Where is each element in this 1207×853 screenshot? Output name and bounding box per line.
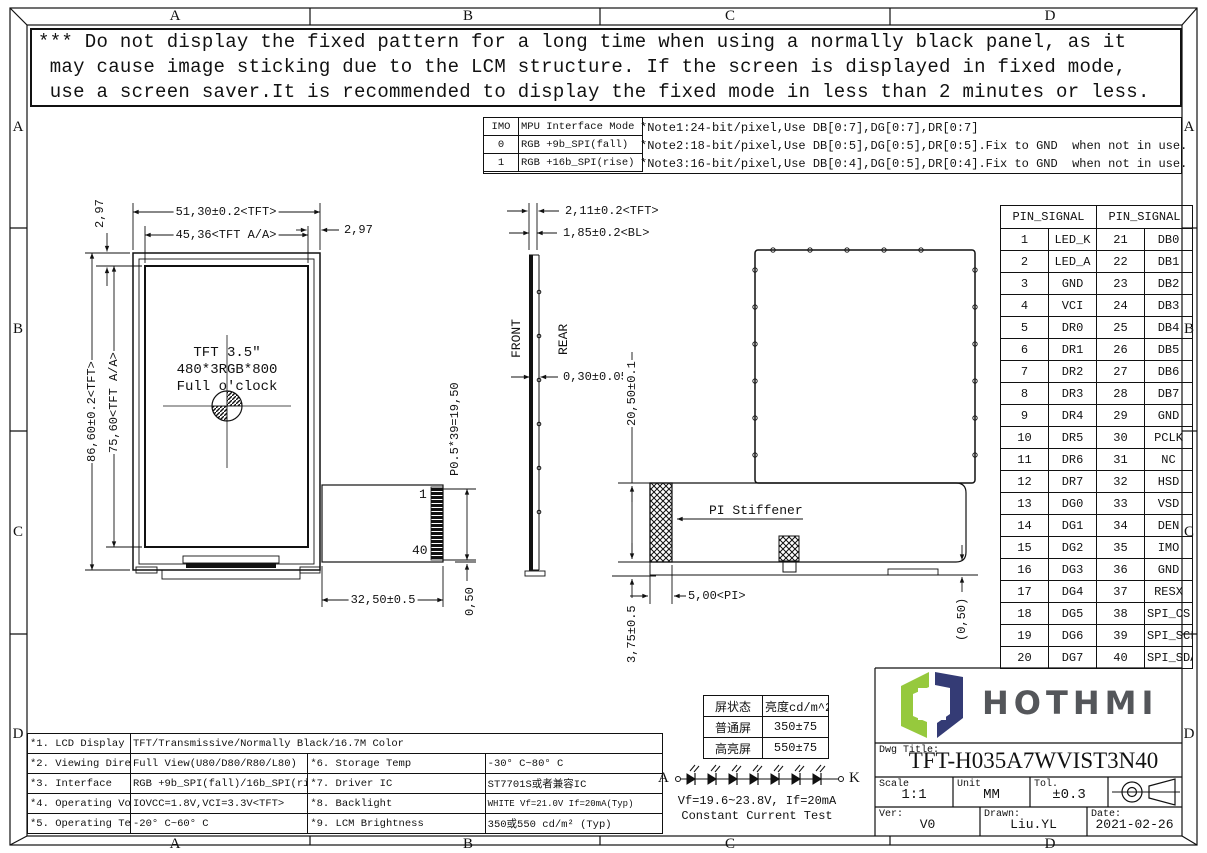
dim-thickness-tft: 2,11±0.2<TFT> (563, 204, 661, 218)
zone-bottom-a: A (170, 836, 181, 853)
warning-line: may cause image sticking due to the LCM … (38, 56, 1126, 78)
pi-stiffener-label: PI Stiffener (707, 504, 805, 518)
panel-spec-line1: TFT 3.5″ (193, 345, 260, 361)
pin-number: 13 (1001, 493, 1049, 515)
brightness-normal-value: 350±75 (763, 717, 829, 738)
pin-number: 19 (1001, 625, 1049, 647)
spec-row: *2. Viewing Diretion Full View(U80/D80/R… (28, 754, 663, 774)
spec-value: ST7701S或者兼容IC (485, 774, 662, 794)
pin-row: 3GND23DB2 (1001, 273, 1193, 295)
pin-row: 8DR328DB7 (1001, 383, 1193, 405)
brand-logo-text: HOTHMI (982, 684, 1158, 722)
pin-number: 2 (1001, 251, 1049, 273)
dim-half-mm: 0,50 (461, 586, 479, 617)
spec-value: Full View(U80/D80/R80/L80) (131, 754, 308, 774)
pin-number: 7 (1001, 361, 1049, 383)
dim-pi-width: 5,00<PI> (686, 589, 748, 603)
pin-signal: LED_K (1049, 229, 1097, 251)
dim-pin-pitch: P0.5*39=19,50 (446, 381, 464, 477)
brightness-normal-label: 普通屏 (704, 717, 763, 738)
pin-signal: DR2 (1049, 361, 1097, 383)
pin-number: 27 (1097, 361, 1145, 383)
pin-number: 16 (1001, 559, 1049, 581)
imo-value: 1 (484, 154, 519, 172)
pin-signal: GND (1049, 273, 1097, 295)
spec-label: *4. Operating Voltage (28, 794, 131, 814)
spec-label: *1. LCD Display Type (28, 734, 131, 754)
spec-row: *4. Operating Voltage IOVCC=1.8V,VCI=3.3… (28, 794, 663, 814)
pin-signal: GND (1145, 405, 1193, 427)
pin-row: 14DG134DEN (1001, 515, 1193, 537)
zone-right-a: A (1183, 119, 1195, 136)
pin-number: 23 (1097, 273, 1145, 295)
front-side-label: FRONT (508, 318, 526, 359)
imo-header: IMO (484, 118, 519, 136)
pin-number: 10 (1001, 427, 1049, 449)
pin-number: 26 (1097, 339, 1145, 361)
dim-polarizer: 0,30±0.05 (561, 370, 630, 384)
dim-fold-height: 20,50±0.1 (623, 360, 641, 427)
hothmi-logo-mark (901, 672, 963, 738)
pin-signal: DR7 (1049, 471, 1097, 493)
panel-spec-line2: 480*3RGB*800 (177, 362, 278, 378)
pin-number: 34 (1097, 515, 1145, 537)
pin-number: 18 (1001, 603, 1049, 625)
pin-row: 18DG538SPI_CS (1001, 603, 1193, 625)
dim-stiffener-height: 3,75±0.5 (623, 604, 641, 664)
spec-row: *5. Operating Temp -20° C~60° C *9. LCM … (28, 814, 663, 834)
pin-signal: DB4 (1145, 317, 1193, 339)
note-2: *Note2:18-bit/pixel,Use DB[0:5],DG[0:5],… (640, 139, 1187, 153)
zone-left-d: D (12, 726, 24, 743)
pin-signal: DB6 (1145, 361, 1193, 383)
spec-value: -20° C~60° C (131, 814, 308, 834)
side-view (525, 255, 545, 576)
pin-signal: DB7 (1145, 383, 1193, 405)
spec-label: *6. Storage Temp (308, 754, 485, 774)
pin-signal: VSD (1145, 493, 1193, 515)
pin-number: 29 (1097, 405, 1145, 427)
pin-number: 17 (1001, 581, 1049, 603)
pin-signal: RESX (1145, 581, 1193, 603)
pin-signal: DG7 (1049, 647, 1097, 669)
pin-signal: GND (1145, 559, 1193, 581)
led-test-circuit (676, 765, 844, 785)
dim-width-tft: 51,30±0.2<TFT> (174, 205, 279, 219)
scale-value: 1:1 (875, 787, 953, 803)
projection-symbol (1112, 779, 1180, 805)
pin-signal: HSD (1145, 471, 1193, 493)
fpc-pin1-label: 1 (417, 488, 429, 502)
pin-signal: DG2 (1049, 537, 1097, 559)
pin-number: 28 (1097, 383, 1145, 405)
pin-number: 40 (1097, 647, 1145, 669)
spec-value: -30° C~80° C (485, 754, 662, 774)
pin-signal: SPI_SDA (1145, 647, 1193, 669)
pin-signal: DB3 (1145, 295, 1193, 317)
note-1: *Note1:24-bit/pixel,Use DB[0:7],DG[0:7],… (640, 121, 978, 135)
dim-fpc-width: 32,50±0.5 (349, 593, 418, 607)
dim-width-aa: 45,36<TFT A/A> (174, 228, 279, 242)
pin-signal: DG1 (1049, 515, 1097, 537)
pin-number: 1 (1001, 229, 1049, 251)
dim-height-aa: 75,60<TFT A/A> (105, 351, 123, 454)
pin-row: 4VCI24DB3 (1001, 295, 1193, 317)
pin-number: 39 (1097, 625, 1145, 647)
unit-value: MM (953, 787, 1030, 803)
pin-signal: DB0 (1145, 229, 1193, 251)
brightness-high-value: 550±75 (763, 738, 829, 759)
pin-table-header: PIN_SIGNAL (1001, 206, 1097, 229)
pin-number: 5 (1001, 317, 1049, 339)
brightness-header-value: 亮度cd/m^2 (763, 696, 829, 717)
pin-number: 38 (1097, 603, 1145, 625)
pin-number: 3 (1001, 273, 1049, 295)
zone-bottom-c: C (725, 836, 735, 853)
pin-row: 11DR631NC (1001, 449, 1193, 471)
zone-top-a: A (170, 8, 181, 25)
warning-line: *** Do not display the fixed pattern for… (38, 31, 1126, 53)
pin-signal: DR4 (1049, 405, 1097, 427)
pin-signal: DB5 (1145, 339, 1193, 361)
pin-number: 24 (1097, 295, 1145, 317)
pin-number: 33 (1097, 493, 1145, 515)
spec-value: TFT/Transmissive/Normally Black/16.7M Co… (131, 734, 663, 754)
pin-signal: NC (1145, 449, 1193, 471)
pin-row: 15DG235IMO (1001, 537, 1193, 559)
pin-number: 21 (1097, 229, 1145, 251)
pin-number: 35 (1097, 537, 1145, 559)
imo-mode-header: MPU Interface Mode (519, 118, 643, 136)
pin-number: 14 (1001, 515, 1049, 537)
drawn-by-value: Liu.YL (980, 817, 1087, 832)
spec-value: WHITE Vf=21.0V If=20mA(Typ) (485, 794, 662, 814)
spec-label: *3. Interface (28, 774, 131, 794)
imo-mode: RGB +9b_SPI(fall) (519, 136, 643, 154)
zone-left-a: A (12, 119, 24, 136)
pin-signal: DR0 (1049, 317, 1097, 339)
pin-number: 12 (1001, 471, 1049, 493)
dim-height-tft: 86,60±0.2<TFT> (83, 360, 101, 463)
pin-row: 10DR530PCLK (1001, 427, 1193, 449)
zone-top-c: C (725, 8, 735, 25)
pin-number: 32 (1097, 471, 1145, 493)
version-value: V0 (875, 817, 980, 832)
rear-side-label: REAR (555, 323, 573, 356)
pin-row: 5DR025DB4 (1001, 317, 1193, 339)
dim-border-left: 2,97 (91, 198, 109, 229)
zone-left-c: C (12, 524, 24, 541)
note-3: *Note3:16-bit/pixel,Use DB[0:4],DG[0:5],… (640, 157, 1187, 171)
spec-row: *3. Interface RGB +9b_SPI(fall)/16b_SPI(… (28, 774, 663, 794)
pin-signal: DB1 (1145, 251, 1193, 273)
zone-top-d: D (1045, 8, 1056, 25)
spec-value: RGB +9b_SPI(fall)/16b_SPI(rise) (131, 774, 308, 794)
pin-signal: IMO (1145, 537, 1193, 559)
spec-label: *8. Backlight (308, 794, 485, 814)
pin-number: 20 (1001, 647, 1049, 669)
pin-number: 9 (1001, 405, 1049, 427)
pin-number: 11 (1001, 449, 1049, 471)
dim-thickness-bl: 1,85±0.2<BL> (561, 226, 651, 240)
led-test-method: Constant Current Test (679, 809, 834, 823)
pin-signal: DEN (1145, 515, 1193, 537)
pin-row: 6DR126DB5 (1001, 339, 1193, 361)
pin-row: 7DR227DB6 (1001, 361, 1193, 383)
imo-mode: RGB +16b_SPI(rise) (519, 154, 643, 172)
pin-number: 37 (1097, 581, 1145, 603)
pin-signal: PCLK (1145, 427, 1193, 449)
front-view (133, 253, 443, 579)
pin-signal: DR6 (1049, 449, 1097, 471)
spec-label: *2. Viewing Diretion (28, 754, 131, 774)
zone-top-b: B (463, 8, 473, 25)
warning-line: use a screen saver.It is recommended to … (38, 81, 1150, 103)
spec-label: *5. Operating Temp (28, 814, 131, 834)
brightness-high-label: 高亮屏 (704, 738, 763, 759)
zone-right-d: D (1183, 726, 1195, 743)
tolerance-value: ±0.3 (1030, 787, 1108, 803)
pin-number: 22 (1097, 251, 1145, 273)
drawing-title: TFT-H035A7WVIST3N40 (885, 748, 1182, 774)
imo-value: 0 (484, 136, 519, 154)
spec-label: *7. Driver IC (308, 774, 485, 794)
pin-table-header: PIN_SIGNAL (1097, 206, 1193, 229)
spec-row: *1. LCD Display Type TFT/Transmissive/No… (28, 734, 663, 754)
pin-row: 17DG437RESX (1001, 581, 1193, 603)
pin-signal: DG6 (1049, 625, 1097, 647)
pin-signal: DG0 (1049, 493, 1097, 515)
pin-signal-table: PIN_SIGNAL PIN_SIGNAL 1LED_K21DB0 2LED_A… (1000, 205, 1193, 669)
led-test-spec: Vf=19.6~23.8V, If=20mA (676, 794, 838, 808)
led-symbols (687, 765, 825, 785)
pin-row: 16DG336GND (1001, 559, 1193, 581)
dim-ref-half: (0,50) (953, 597, 971, 642)
dim-border-right: 2,97 (342, 223, 375, 237)
mpu-interface-mode-table: IMO MPU Interface Mode 0 RGB +9b_SPI(fal… (483, 117, 643, 172)
zone-left-b: B (12, 321, 24, 338)
pin-signal: DR5 (1049, 427, 1097, 449)
pin-row: 20DG740SPI_SDA (1001, 647, 1193, 669)
pin-signal: SPI_SCL (1145, 625, 1193, 647)
pin-signal: DB2 (1145, 273, 1193, 295)
pin-signal: DG3 (1049, 559, 1097, 581)
engineering-drawing-sheet: A B C D A B C D A B C D A B C D *** Do n… (0, 0, 1207, 853)
pin-number: 15 (1001, 537, 1049, 559)
fpc-pin40-label: 40 (410, 544, 430, 558)
rear-view-dims (612, 352, 978, 604)
pin-signal: VCI (1049, 295, 1097, 317)
pin-number: 25 (1097, 317, 1145, 339)
pin-row: 19DG639SPI_SCL (1001, 625, 1193, 647)
pin-signal: DR1 (1049, 339, 1097, 361)
pin-signal: DG5 (1049, 603, 1097, 625)
pin-row: 13DG033VSD (1001, 493, 1193, 515)
spec-value: 350或550 cd/m² (Typ) (485, 814, 662, 834)
pin-row: 1LED_K21DB0 (1001, 229, 1193, 251)
pin-number: 6 (1001, 339, 1049, 361)
pin-number: 30 (1097, 427, 1145, 449)
date-value: 2021-02-26 (1087, 817, 1182, 832)
led-cathode-label: K (849, 770, 860, 787)
pin-number: 8 (1001, 383, 1049, 405)
pin-row: 2LED_A22DB1 (1001, 251, 1193, 273)
spec-label: *9. LCM Brightness (308, 814, 485, 834)
spec-value: IOVCC=1.8V,VCI=3.3V<TFT> (131, 794, 308, 814)
brightness-table: 屏状态 亮度cd/m^2 普通屏 350±75 高亮屏 550±75 (703, 695, 829, 759)
pin-row: 9DR429GND (1001, 405, 1193, 427)
lcd-spec-table: *1. LCD Display Type TFT/Transmissive/No… (27, 733, 663, 834)
rear-view (650, 248, 977, 575)
brightness-header-state: 屏状态 (704, 696, 763, 717)
pin-signal: DG4 (1049, 581, 1097, 603)
pin-number: 4 (1001, 295, 1049, 317)
zone-bottom-b: B (463, 836, 473, 853)
pin-signal: DR3 (1049, 383, 1097, 405)
pin-row: 12DR732HSD (1001, 471, 1193, 493)
pin-number: 31 (1097, 449, 1145, 471)
zone-bottom-d: D (1045, 836, 1056, 853)
pin-signal: LED_A (1049, 251, 1097, 273)
panel-spec-line3: Full o'clock (177, 379, 278, 395)
pin-number: 36 (1097, 559, 1145, 581)
pin-signal: SPI_CS (1145, 603, 1193, 625)
